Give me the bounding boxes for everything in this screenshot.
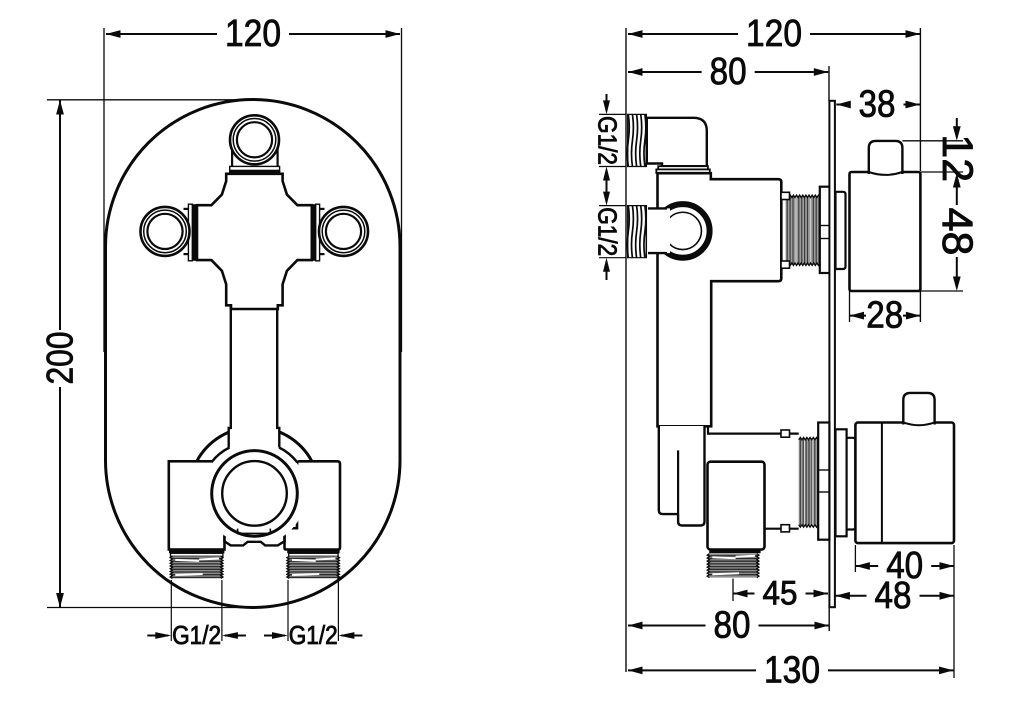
svg-text:120: 120 xyxy=(746,13,802,55)
svg-text:G1/2: G1/2 xyxy=(593,207,621,256)
svg-text:80: 80 xyxy=(714,605,751,647)
svg-text:38: 38 xyxy=(859,84,896,126)
svg-text:120: 120 xyxy=(225,13,281,55)
svg-text:48: 48 xyxy=(933,208,981,256)
svg-text:48: 48 xyxy=(875,575,912,617)
svg-text:G1/2: G1/2 xyxy=(593,116,621,165)
svg-text:200: 200 xyxy=(40,332,81,385)
svg-text:130: 130 xyxy=(764,649,820,691)
svg-text:G1/2: G1/2 xyxy=(172,622,221,650)
svg-text:45: 45 xyxy=(763,575,798,613)
svg-text:28: 28 xyxy=(866,295,903,337)
svg-text:80: 80 xyxy=(710,51,747,93)
svg-text:G1/2: G1/2 xyxy=(289,622,338,650)
